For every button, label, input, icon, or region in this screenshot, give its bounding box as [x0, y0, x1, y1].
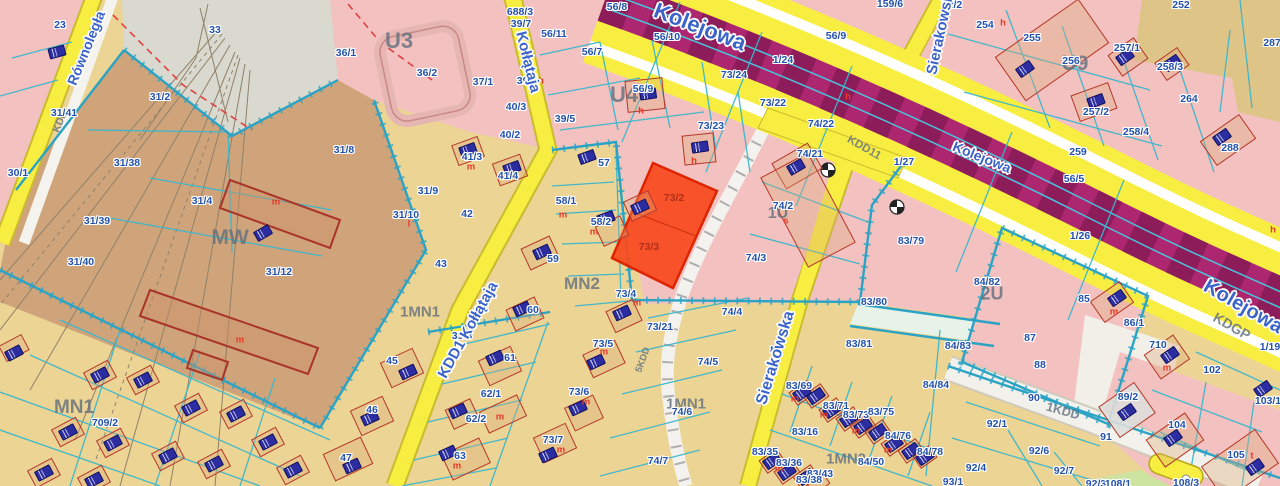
parcel-label[interactable]: 252: [1172, 0, 1190, 11]
parcel-label[interactable]: 259: [1069, 146, 1087, 158]
parcel-label[interactable]: 85: [1078, 293, 1090, 305]
marker-letter: m: [496, 412, 504, 423]
parcel-label[interactable]: 83/79: [898, 235, 924, 247]
parcel-label[interactable]: 83/81: [846, 338, 872, 350]
parcel-label[interactable]: 258/3: [1157, 61, 1183, 73]
parcel-label[interactable]: 74/2: [773, 200, 793, 212]
parcel-label[interactable]: 84/76: [885, 430, 911, 442]
parcel-label[interactable]: 74/6: [672, 406, 692, 418]
parcel-label[interactable]: 56/7: [582, 46, 602, 58]
parcel-label[interactable]: 255: [1023, 32, 1041, 44]
parcel-label[interactable]: 40/3: [506, 101, 526, 113]
parcel-label[interactable]: 31/9: [418, 185, 438, 197]
highlighted-parcel-label[interactable]: 73/2: [664, 192, 684, 204]
parcel-label[interactable]: 74/4: [722, 306, 742, 318]
parcel-label[interactable]: 31/12: [266, 266, 292, 278]
parcel-label[interactable]: 92/3: [1086, 478, 1106, 486]
parcel-label[interactable]: 83/16: [792, 426, 818, 438]
parcel-label[interactable]: 73/5: [593, 338, 613, 350]
marker-letter: h: [1270, 225, 1276, 236]
parcel-label[interactable]: 256: [1062, 55, 1080, 67]
parcel-label[interactable]: 264: [1180, 93, 1198, 105]
marker-letter: m: [467, 162, 475, 173]
parcel-label[interactable]: 83/36: [776, 457, 802, 469]
parcel-label[interactable]: 257/2: [1083, 106, 1109, 118]
parcel-label[interactable]: 287: [1263, 37, 1280, 49]
parcel-label[interactable]: 83/73: [843, 409, 869, 421]
parcel-label[interactable]: 61: [504, 352, 516, 364]
parcel-label[interactable]: 73/6: [569, 386, 589, 398]
marker-letter: h: [845, 92, 851, 103]
parcel-label[interactable]: 87: [1024, 332, 1036, 344]
parcel-label[interactable]: 83/35: [752, 446, 778, 458]
parcel-label[interactable]: 42: [461, 208, 473, 220]
parcel-label[interactable]: 84/84: [923, 379, 949, 391]
parcel-label[interactable]: 89/2: [1118, 391, 1138, 403]
marker-letter: h: [1000, 18, 1006, 29]
marker-letter: m: [559, 210, 567, 221]
marker-letter: h: [638, 106, 644, 117]
marker-letter: m: [884, 445, 892, 456]
parcel-label[interactable]: 257/1: [1114, 42, 1140, 54]
parcel-label[interactable]: 93/1: [943, 476, 963, 486]
parcel-label[interactable]: 56/9: [633, 83, 653, 95]
parcel-label[interactable]: 1/19: [1260, 341, 1280, 353]
marker-letter: m: [1163, 363, 1171, 374]
parcel-label[interactable]: 60: [527, 304, 539, 316]
parcel-label[interactable]: 92/1: [987, 418, 1007, 430]
parcel-label[interactable]: 31/39: [84, 215, 110, 227]
parcel-label[interactable]: 86/1: [1124, 317, 1144, 329]
parcel-label[interactable]: 36/1: [336, 47, 356, 59]
parcel-label[interactable]: 1/27: [894, 156, 914, 168]
parcel-label[interactable]: 56/9: [826, 30, 846, 42]
parcel-label[interactable]: 41/4: [498, 170, 518, 182]
parcel-label[interactable]: 74/5: [698, 356, 718, 368]
zone-label: 1MN1: [400, 304, 440, 321]
parcel-label[interactable]: 108/3: [1173, 477, 1199, 486]
parcel-label[interactable]: 92/6: [1029, 445, 1049, 457]
parcel-label[interactable]: 73/21: [647, 321, 673, 333]
marker-letter: m: [1110, 307, 1118, 318]
parcel-label[interactable]: 1/24: [773, 54, 793, 66]
parcel-label[interactable]: 73/4: [616, 288, 636, 300]
parcel-label[interactable]: 84/78: [917, 446, 943, 458]
parcel-label[interactable]: 47: [340, 452, 352, 464]
parcel-label[interactable]: 31/4: [192, 195, 212, 207]
parcel-label[interactable]: 56/5: [1064, 173, 1084, 185]
parcel-label[interactable]: 46: [366, 404, 378, 416]
parcel-label[interactable]: 105: [1227, 449, 1245, 461]
parcel-label[interactable]: 37/1: [473, 76, 493, 88]
parcel-label[interactable]: 40/2: [500, 129, 520, 141]
zone-label: MN1: [54, 397, 94, 419]
parcel-label[interactable]: 688/3: [507, 6, 533, 18]
parcel-label[interactable]: 74/3: [746, 252, 766, 264]
parcel-label[interactable]: 92/7: [1054, 465, 1074, 477]
parcel-label[interactable]: 709/2: [92, 417, 118, 429]
parcel-label[interactable]: 74/22: [808, 118, 834, 130]
parcel-label[interactable]: 254: [976, 19, 994, 31]
parcel-label[interactable]: 43: [435, 258, 447, 270]
marker-letter: m: [852, 426, 860, 437]
parcel-label[interactable]: 83/38: [796, 474, 822, 486]
parcel-label[interactable]: 23: [54, 19, 66, 31]
parcel-label[interactable]: 288: [1221, 142, 1239, 154]
parcel-label[interactable]: 31/10: [393, 209, 419, 221]
parcel-label[interactable]: 84/83: [945, 340, 971, 352]
address-plate-icon: [691, 140, 709, 153]
parcel-label[interactable]: 63: [454, 450, 466, 462]
parcel-label[interactable]: 91: [1100, 431, 1112, 443]
parcel-label[interactable]: 84/50: [858, 456, 884, 468]
parcel-label[interactable]: 39/7: [511, 18, 531, 30]
parcel-label[interactable]: 83/80: [861, 296, 887, 308]
zone-label: MW: [211, 226, 248, 250]
parcel-label[interactable]: 83/69: [786, 380, 812, 392]
parcel-label[interactable]: 90: [1028, 392, 1040, 404]
parcel-label[interactable]: 41/3: [462, 151, 482, 163]
parcel-label[interactable]: 83/75: [868, 406, 894, 418]
parcel-label[interactable]: 74/7: [648, 455, 668, 467]
marker-letter: m: [582, 397, 590, 408]
parcel-label[interactable]: 58/2: [591, 216, 611, 228]
parcel-label[interactable]: 56/8: [607, 1, 627, 13]
marker-letter: m: [453, 461, 461, 472]
parcel-label[interactable]: 57: [598, 157, 610, 169]
parcel-label[interactable]: 1/26: [1070, 230, 1090, 242]
zoning-map[interactable]: 73/2 73/3 mmmmmmmmmmmmmmmmmmhhhhhhlts233…: [0, 0, 1280, 486]
parcel-label[interactable]: 31/2: [150, 91, 170, 103]
parcel-label[interactable]: 88: [1034, 359, 1046, 371]
marker-letter: h: [691, 156, 697, 167]
parcel-label[interactable]: 258/4: [1123, 126, 1149, 138]
parcel-label[interactable]: 73/23: [698, 120, 724, 132]
parcel-label[interactable]: 710: [1149, 339, 1167, 351]
parcel-label[interactable]: 31/40: [68, 256, 94, 268]
parcel-label[interactable]: 59: [547, 253, 559, 265]
parcel-label[interactable]: 62/2: [466, 413, 486, 425]
parcel-label[interactable]: 92/4: [966, 462, 986, 474]
parcel-label[interactable]: 58/1: [556, 195, 576, 207]
parcel-label[interactable]: 56/10: [654, 31, 680, 43]
marker-letter: t: [1250, 451, 1253, 462]
parcel-label[interactable]: 30/1: [8, 167, 28, 179]
parcel-label[interactable]: 36/2: [417, 67, 437, 79]
parcel-label[interactable]: 74/21: [797, 148, 823, 160]
highlighted-parcel-label[interactable]: 73/3: [639, 241, 659, 253]
marker-letter: m: [236, 335, 244, 346]
parcel-label[interactable]: 73/7: [543, 434, 563, 446]
marker-letter: m: [557, 445, 565, 456]
parcel-label[interactable]: 45: [386, 355, 398, 367]
marker-letter: m: [791, 394, 799, 405]
parcel-label[interactable]: 73/22: [760, 97, 786, 109]
marker-letter: m: [272, 197, 280, 208]
zone-label: U3: [385, 28, 413, 54]
parcel-label[interactable]: 62/1: [481, 388, 501, 400]
parcel-label[interactable]: 103/1: [1255, 395, 1280, 407]
parcel-label[interactable]: 102: [1203, 364, 1221, 376]
parcel-label[interactable]: 84/82: [974, 276, 1000, 288]
parcel-label[interactable]: 73/24: [721, 69, 747, 81]
parcel-label[interactable]: 159/6: [877, 0, 903, 10]
parcel-label[interactable]: 56/11: [541, 28, 567, 40]
parcel-label[interactable]: 31/8: [334, 144, 354, 156]
parcel-label[interactable]: 108/1: [1105, 478, 1131, 486]
marker-letter: m: [590, 227, 598, 238]
parcel-label[interactable]: 31/38: [114, 157, 140, 169]
zone-label: MN2: [564, 274, 600, 294]
parcel-label[interactable]: 39/5: [555, 113, 575, 125]
parcel-label[interactable]: 31/41: [51, 107, 77, 119]
parcel-label[interactable]: 104: [1168, 419, 1186, 431]
parcel-label[interactable]: 33: [209, 24, 221, 36]
